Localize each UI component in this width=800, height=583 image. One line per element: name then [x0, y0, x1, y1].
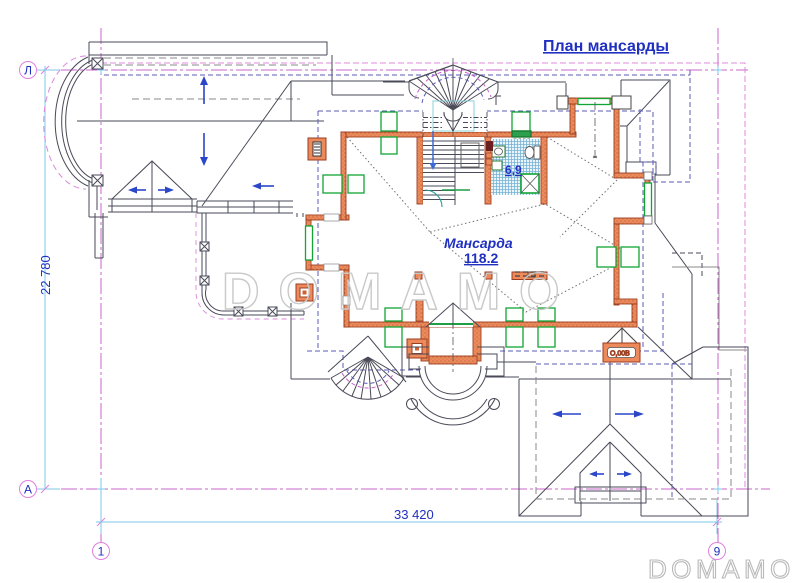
svg-text:Л: Л — [24, 64, 32, 78]
svg-text:DOMAMO: DOMAMO — [222, 263, 579, 321]
svg-text:А: А — [24, 483, 32, 497]
svg-text:План мансарды: План мансарды — [543, 38, 669, 55]
svg-text:6,9: 6,9 — [505, 163, 522, 177]
svg-text:22 780: 22 780 — [38, 255, 53, 295]
svg-text:O,00B: O,00B — [610, 351, 630, 358]
svg-text:Мансарда: Мансарда — [444, 235, 513, 251]
svg-text:DOMAMO: DOMAMO — [648, 554, 795, 583]
svg-text:1: 1 — [98, 545, 105, 559]
svg-text:33 420: 33 420 — [394, 507, 434, 522]
